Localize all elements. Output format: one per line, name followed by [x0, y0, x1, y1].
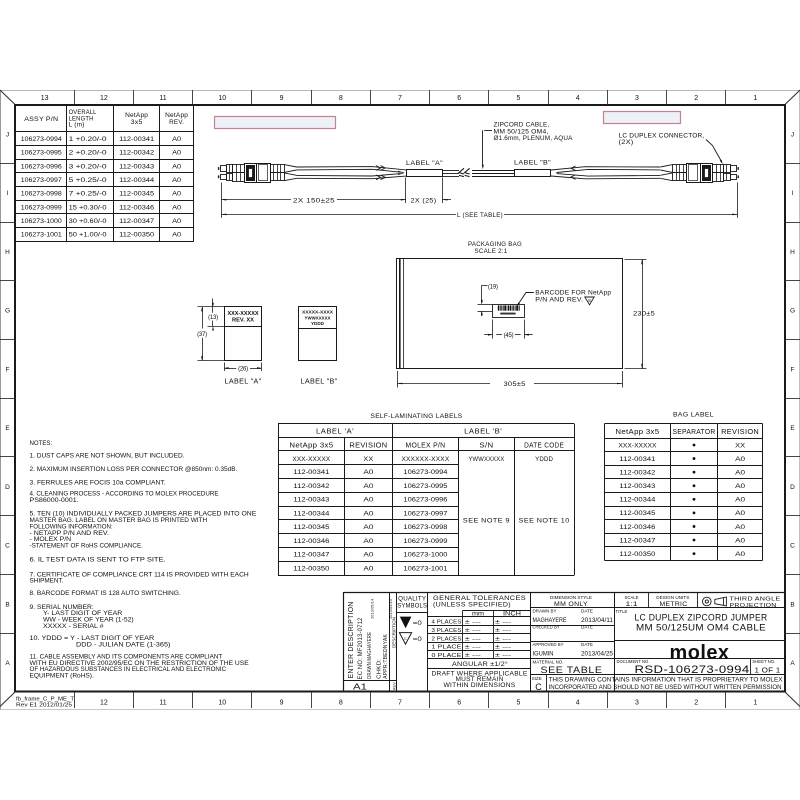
svg-text:112-00342: 112-00342 [119, 150, 155, 157]
svg-text:E: E [790, 425, 795, 432]
svg-text:± ---: ± --- [495, 619, 511, 625]
svg-text:H: H [790, 249, 795, 256]
svg-text:REVISION: REVISION [721, 429, 759, 436]
svg-text:G: G [5, 308, 10, 315]
svg-text:106273-0996: 106273-0996 [21, 163, 63, 170]
svg-text:106273-0997: 106273-0997 [21, 177, 63, 184]
svg-text:XXXXXX-XXXX: XXXXXX-XXXX [401, 456, 449, 463]
svg-text:H: H [5, 249, 10, 256]
svg-text:IGUMIN: IGUMIN [533, 650, 554, 657]
svg-text:6: 6 [457, 95, 461, 102]
svg-text:2X (25): 2X (25) [411, 197, 437, 204]
svg-text:molex: molex [670, 641, 730, 664]
svg-text:2. MAXIMUM INSERTION LOSS PER: 2. MAXIMUM INSERTION LOSS PER CONNECTOR … [30, 466, 238, 473]
svg-text:± ---: ± --- [465, 653, 481, 659]
svg-text:SYMBOLS: SYMBOLS [397, 603, 427, 610]
svg-text:± ---: ± --- [465, 628, 481, 634]
svg-text:3 PLACES: 3 PLACES [432, 628, 462, 634]
svg-text:(45): (45) [504, 333, 514, 339]
svg-text:A0: A0 [172, 191, 182, 198]
svg-text:DATE: DATE [581, 609, 593, 614]
svg-text:DRAWN:MAGHAYERE: DRAWN:MAGHAYERE [367, 632, 373, 679]
svg-text:A0: A0 [735, 537, 745, 544]
svg-text:112-00347: 112-00347 [119, 218, 155, 225]
svg-text:XXX-XXXXX: XXX-XXXXX [292, 456, 330, 463]
svg-text:REVISION: REVISION [349, 443, 387, 450]
svg-text:SEE NOTE 9: SEE NOTE 9 [463, 517, 510, 524]
svg-text:4: 4 [576, 700, 580, 707]
svg-text:112-00344: 112-00344 [119, 177, 155, 184]
svg-text:106273-1001: 106273-1001 [21, 232, 63, 239]
svg-text:S/N: S/N [479, 443, 493, 450]
svg-text:106273-0994: 106273-0994 [403, 469, 447, 476]
svg-text:A0: A0 [735, 510, 745, 517]
svg-text:SELF-LAMINATING LABELS: SELF-LAMINATING LABELS [371, 413, 463, 420]
svg-text:LABEL "B": LABEL "B" [514, 160, 551, 167]
svg-text:INCORPORATED AND SHOULD NOT BE: INCORPORATED AND SHOULD NOT BE USED WITH… [549, 685, 782, 691]
svg-text:C: C [535, 682, 542, 692]
svg-text:6. IL TEST DATA IS SENT TO FTP: 6. IL TEST DATA IS SENT TO FTP SITE. [30, 557, 166, 564]
svg-text:112-00347: 112-00347 [293, 552, 329, 559]
svg-text:THIS DRAWING CONTAINS INFORMAT: THIS DRAWING CONTAINS INFORMATION THAT I… [549, 678, 783, 684]
svg-text:106273-0998: 106273-0998 [21, 191, 63, 198]
svg-text:XXXXX - SERIAL #: XXXXX - SERIAL # [43, 623, 104, 630]
svg-text:I: I [792, 190, 794, 197]
svg-text:A: A [5, 660, 10, 667]
svg-text:112-00345: 112-00345 [119, 191, 155, 198]
svg-text:112-00343: 112-00343 [293, 497, 329, 504]
svg-text:A0: A0 [735, 456, 745, 463]
svg-text:2013/04/11: 2013/04/11 [581, 617, 613, 624]
svg-text:J: J [791, 131, 794, 138]
svg-text:A0: A0 [172, 150, 182, 157]
svg-text:C: C [404, 636, 407, 641]
svg-text:7: 7 [398, 95, 402, 102]
svg-text:A0: A0 [363, 524, 373, 531]
svg-text:A0: A0 [735, 483, 745, 490]
svg-text:112-00350: 112-00350 [119, 232, 155, 239]
svg-text:112-00350: 112-00350 [619, 551, 655, 558]
svg-text:106273-0999: 106273-0999 [21, 204, 63, 211]
svg-text:PS86000-0001.: PS86000-0001. [30, 497, 79, 504]
svg-text:REV. XX: REV. XX [232, 318, 255, 324]
svg-text:12: 12 [100, 700, 108, 707]
svg-text:112-00341: 112-00341 [293, 469, 329, 476]
svg-text:G: G [790, 308, 795, 315]
svg-text:5 +0.25/-0: 5 +0.25/-0 [69, 177, 108, 184]
svg-text:(UNLESS SPECIFIED): (UNLESS SPECIFIED) [433, 602, 511, 609]
svg-text:D: D [790, 484, 795, 491]
svg-text:B: B [790, 601, 794, 608]
svg-text:LABEL "A": LABEL "A" [225, 379, 262, 386]
svg-text:(2X): (2X) [619, 139, 634, 146]
svg-text:A1: A1 [353, 683, 368, 692]
svg-text:I: I [7, 190, 9, 197]
svg-text:5: 5 [517, 95, 521, 102]
svg-text:B: B [5, 601, 9, 608]
svg-text:EC NO: MF2013-0712: EC NO: MF2013-0712 [358, 617, 364, 679]
svg-text:METRIC: METRIC [660, 601, 688, 608]
svg-text:3. FERRULES ARE FOCIS 10a COMP: 3. FERRULES ARE FOCIS 10a COMPLIANT. [30, 480, 166, 487]
svg-text:7: 7 [398, 700, 402, 707]
svg-text:SEE TABLE: SEE TABLE [541, 665, 603, 675]
svg-text:2: 2 [694, 700, 698, 707]
svg-text:2013/05/15: 2013/05/15 [388, 599, 393, 619]
svg-text:MAGHAYERE: MAGHAYERE [533, 617, 567, 624]
svg-text:Rev E1 2012/01/25: Rev E1 2012/01/25 [16, 702, 72, 708]
svg-text:112-00346: 112-00346 [293, 538, 329, 545]
svg-text:± ---: ± --- [465, 619, 481, 625]
svg-text:YDDD: YDDD [311, 321, 325, 326]
svg-text:6: 6 [457, 700, 461, 707]
svg-text:106273-1001: 106273-1001 [403, 566, 447, 573]
svg-text:J: J [6, 131, 9, 138]
svg-text:106273-1000: 106273-1000 [21, 218, 63, 225]
svg-text:112-00346: 112-00346 [619, 524, 655, 531]
svg-text:A: A [790, 660, 795, 667]
svg-text:REV.: REV. [169, 119, 184, 126]
svg-text:P/N AND REV.: P/N AND REV. [535, 296, 583, 303]
svg-text:A0: A0 [363, 469, 373, 476]
svg-text:NetApp 3x5: NetApp 3x5 [615, 429, 659, 436]
svg-text:LABEL 'B': LABEL 'B' [464, 429, 502, 436]
svg-text:YDDD: YDDD [535, 456, 553, 463]
svg-text:0 PLACE: 0 PLACE [432, 653, 462, 659]
svg-text:ENTER DESCRIPTION: ENTER DESCRIPTION [348, 602, 355, 679]
svg-text:A0: A0 [172, 136, 182, 143]
svg-text:5: 5 [517, 700, 521, 707]
svg-text:A0: A0 [735, 551, 745, 558]
svg-text:112-00344: 112-00344 [619, 497, 655, 504]
svg-text:WITHIN DIMENSIONS: WITHIN DIMENSIONS [444, 683, 516, 689]
svg-text:SEPARATOR: SEPARATOR [673, 429, 716, 436]
svg-text:3x5: 3x5 [131, 119, 143, 126]
svg-text:8: 8 [339, 95, 343, 102]
svg-text:A0: A0 [363, 483, 373, 490]
svg-text:2013/05/14: 2013/05/14 [369, 598, 374, 619]
svg-text:11: 11 [159, 95, 166, 102]
svg-text:LABEL "A": LABEL "A" [406, 160, 443, 167]
svg-text:3: 3 [635, 700, 639, 707]
svg-text:A0: A0 [363, 552, 373, 559]
svg-text:A0: A0 [363, 497, 373, 504]
svg-text:F: F [6, 366, 10, 373]
svg-text:1 OF 1: 1 OF 1 [755, 665, 781, 674]
svg-text:PROJECTION: PROJECTION [730, 603, 777, 609]
svg-text:F: F [791, 366, 795, 373]
svg-text:9: 9 [280, 95, 284, 102]
svg-text:LABEL "B": LABEL "B" [301, 379, 338, 386]
svg-text:106273-0994: 106273-0994 [21, 136, 63, 143]
svg-text:106273-0997: 106273-0997 [403, 510, 447, 517]
svg-text:8. BARCODE FORMAT IS 128 AUTO: 8. BARCODE FORMAT IS 128 AUTO SWITCHING. [30, 590, 181, 597]
svg-text:=0: =0 [413, 620, 422, 627]
svg-text:± ---: ± --- [495, 653, 511, 659]
svg-text:112-00347: 112-00347 [619, 537, 655, 544]
svg-text:± ---: ± --- [495, 636, 511, 642]
svg-text:ASSY P/N: ASSY P/N [24, 116, 58, 123]
svg-text:DOCUMENT NO.: DOCUMENT NO. [617, 659, 650, 664]
svg-text:112-00346: 112-00346 [119, 204, 155, 211]
svg-text:NOTES:: NOTES: [30, 440, 53, 447]
svg-text:A0: A0 [735, 469, 745, 476]
svg-text:XX: XX [363, 456, 373, 463]
svg-text:RSD-106273-0994: RSD-106273-0994 [635, 664, 750, 676]
svg-text:=0: =0 [413, 636, 422, 643]
svg-text:12: 12 [100, 95, 108, 102]
svg-text:A0: A0 [172, 177, 182, 184]
svg-text:A0: A0 [363, 566, 373, 573]
svg-text:DIMENSION STYLE: DIMENSION STYLE [550, 595, 592, 600]
svg-text:ANGULAR ±1/2°: ANGULAR ±1/2° [452, 660, 508, 668]
svg-text:305±5: 305±5 [504, 381, 526, 388]
svg-text:C: C [790, 543, 795, 550]
svg-text:106273-0998: 106273-0998 [403, 524, 447, 531]
svg-text:A0: A0 [172, 163, 182, 170]
svg-text:2013/04/25: 2013/04/25 [581, 650, 613, 657]
svg-text:REV: REV [392, 682, 396, 690]
svg-text:8: 8 [339, 700, 343, 707]
svg-text:SEE NOTE 10: SEE NOTE 10 [519, 517, 570, 524]
svg-text:2 +0.20/-0: 2 +0.20/-0 [69, 150, 108, 157]
svg-text:SHEET NO.: SHEET NO. [752, 659, 775, 664]
svg-text:± ---: ± --- [465, 645, 481, 651]
svg-text:1: 1 [753, 95, 757, 102]
svg-text:CHKD:: CHKD: [376, 659, 382, 679]
svg-text:DATE CODE: DATE CODE [524, 443, 564, 450]
svg-text:(19): (19) [488, 284, 498, 290]
svg-text:11: 11 [159, 700, 166, 707]
svg-text:DATE: DATE [581, 625, 593, 630]
svg-text:YWWXXXXX: YWWXXXXX [468, 456, 504, 463]
svg-text:4 PLACES: 4 PLACES [432, 619, 462, 625]
svg-text:A0: A0 [363, 510, 373, 517]
svg-text:4: 4 [576, 95, 580, 102]
svg-text:NetApp 3x5: NetApp 3x5 [289, 443, 333, 450]
svg-text:-STATEMENT OF RoHS COMPLIANCE.: -STATEMENT OF RoHS COMPLIANCE. [30, 543, 144, 550]
svg-text:APPR:TBEDNYAK: APPR:TBEDNYAK [383, 634, 389, 679]
svg-text:L (SEE TABLE): L (SEE TABLE) [457, 212, 503, 219]
svg-text:112-00345: 112-00345 [293, 524, 329, 531]
svg-text:± ---: ± --- [495, 645, 511, 651]
svg-text:E: E [5, 425, 10, 432]
svg-text:MM 50/125UM OM4 CABLE: MM 50/125UM OM4 CABLE [636, 622, 766, 632]
svg-text:112-00345: 112-00345 [619, 510, 655, 517]
svg-text:A0: A0 [735, 497, 745, 504]
svg-text:9: 9 [280, 700, 284, 707]
svg-text:SHIPMENT.: SHIPMENT. [30, 578, 64, 585]
svg-text:SIZE: SIZE [532, 676, 542, 681]
svg-text:DESCRIPTION: DESCRIPTION [391, 617, 396, 648]
svg-text:SCALE: SCALE [625, 595, 639, 600]
svg-text:112-00344: 112-00344 [293, 510, 329, 517]
svg-text:13: 13 [41, 95, 49, 102]
svg-text:APPROVED BY: APPROVED BY [533, 642, 564, 647]
svg-text:DESIGN UNITS: DESIGN UNITS [656, 595, 689, 600]
svg-text:MOLEX P/N: MOLEX P/N [405, 443, 445, 450]
svg-text:106273-0995: 106273-0995 [403, 483, 447, 490]
svg-text:1 +0.20/-0: 1 +0.20/-0 [69, 136, 108, 143]
svg-text:A0: A0 [172, 232, 182, 239]
svg-text:(37): (37) [197, 332, 207, 338]
svg-text:± ---: ± --- [495, 628, 511, 634]
svg-text:LC DUPLEX ZIPCORD JUMPER: LC DUPLEX ZIPCORD JUMPER [635, 612, 768, 622]
svg-text:112-00343: 112-00343 [619, 483, 655, 490]
svg-text:± ---: ± --- [465, 636, 481, 642]
svg-text:A0: A0 [172, 204, 182, 211]
svg-text:DRAWN BY: DRAWN BY [533, 609, 557, 614]
svg-text:106273-0995: 106273-0995 [21, 150, 63, 157]
svg-text:15 +0.30/-0: 15 +0.30/-0 [69, 204, 108, 211]
svg-text:SCALE 2:1: SCALE 2:1 [475, 248, 508, 255]
svg-text:230±5: 230±5 [633, 311, 655, 318]
svg-text:DATE: DATE [581, 642, 593, 647]
svg-text:112-00343: 112-00343 [119, 163, 155, 170]
svg-text:L (m): L (m) [69, 122, 85, 129]
svg-text:TITLE: TITLE [616, 609, 628, 614]
svg-text:C: C [5, 543, 10, 550]
svg-text:XX: XX [735, 442, 746, 449]
svg-text:10: 10 [218, 95, 226, 102]
svg-text:3: 3 [635, 95, 639, 102]
svg-text:MATERIAL NO.: MATERIAL NO. [533, 660, 564, 665]
svg-text:106273-1000: 106273-1000 [403, 552, 447, 559]
svg-text:1 PLACE: 1 PLACE [432, 645, 462, 651]
svg-text:1:1: 1:1 [626, 601, 638, 608]
svg-text:50 +1.00/-0: 50 +1.00/-0 [69, 232, 108, 239]
svg-text:10: 10 [218, 700, 226, 707]
svg-text:(13): (13) [208, 315, 218, 321]
svg-text:XXX-XXXXX: XXX-XXXXX [228, 311, 260, 317]
svg-text:A0: A0 [363, 538, 373, 545]
svg-text:112-00342: 112-00342 [293, 483, 329, 490]
svg-text:106273-0999: 106273-0999 [403, 538, 447, 545]
svg-text:(26): (26) [238, 366, 248, 372]
svg-text:BAG LABEL: BAG LABEL [673, 411, 714, 418]
svg-text:112-00341: 112-00341 [119, 136, 155, 143]
svg-text:A0: A0 [735, 524, 745, 531]
svg-text:YWWXXXXX: YWWXXXXX [305, 315, 332, 320]
svg-text:DDD - JULIAN DATE (1-365): DDD - JULIAN DATE (1-365) [76, 642, 171, 649]
svg-text:112-00350: 112-00350 [293, 566, 329, 573]
svg-text:LABEL 'A': LABEL 'A' [316, 429, 354, 436]
svg-text:112-00341: 112-00341 [619, 456, 655, 463]
svg-text:Ø1.6mm, PLENUM, AQUA: Ø1.6mm, PLENUM, AQUA [494, 135, 574, 142]
svg-text:1: 1 [753, 700, 757, 707]
svg-text:2X 150±25: 2X 150±25 [293, 197, 335, 204]
svg-text:1. DUST CAPS ARE NOT SHOWN, BU: 1. DUST CAPS ARE NOT SHOWN, BUT INCLUDED… [30, 453, 185, 460]
svg-text:D: D [5, 484, 10, 491]
svg-text:7 +0.25/-0: 7 +0.25/-0 [69, 191, 108, 198]
svg-text:30 +0.60/-0: 30 +0.60/-0 [69, 218, 108, 225]
svg-text:XXXXX-XXXX: XXXXX-XXXX [302, 310, 334, 315]
svg-text:MM ONLY: MM ONLY [554, 601, 588, 608]
svg-text:2: 2 [694, 95, 698, 102]
svg-text:112-00342: 112-00342 [619, 469, 655, 476]
svg-text:XXX-XXXXX: XXX-XXXXX [618, 442, 657, 449]
svg-text:106273-0996: 106273-0996 [403, 497, 447, 504]
svg-text:A0: A0 [172, 218, 182, 225]
svg-text:THIRD ANGLE: THIRD ANGLE [730, 597, 781, 603]
svg-text:3 +0.20/-0: 3 +0.20/-0 [69, 163, 108, 170]
svg-text:EQUIPMENT (RoHS).: EQUIPMENT (RoHS). [30, 673, 95, 680]
svg-text:CHECKED BY: CHECKED BY [533, 625, 560, 630]
svg-text:2 PLACES: 2 PLACES [432, 636, 462, 642]
